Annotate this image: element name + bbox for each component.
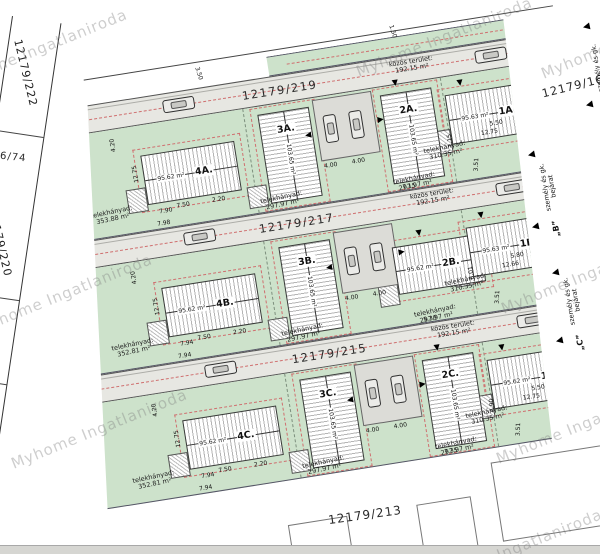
entrance-arrow-down-icon: ▼ xyxy=(477,211,484,220)
entrance-mark: „B” xyxy=(550,220,561,238)
building-label: 1B. xyxy=(518,236,539,250)
dimension: 7.50 xyxy=(176,201,190,210)
building-label: 2C. xyxy=(440,367,461,381)
parcel-label-12179-222: 12179/222 xyxy=(11,38,40,108)
parcel-tick xyxy=(0,293,19,301)
land-share-label: telekhányad:353.88 m² xyxy=(77,202,149,231)
neighbor-building xyxy=(491,444,600,542)
parcel-tick xyxy=(0,377,7,385)
building-label: 4C. xyxy=(236,429,257,443)
building-area: 103.65 m² xyxy=(285,143,297,177)
building-label: 1A. xyxy=(497,104,518,118)
dimension: 3.51 xyxy=(473,158,481,172)
dimension: 7.94 xyxy=(180,339,194,348)
building-label: 3A. xyxy=(275,122,296,136)
building-label: 2A. xyxy=(398,103,419,117)
entrance-arrow-down-icon: ▼ xyxy=(433,343,440,352)
dimension: 7.94 xyxy=(178,351,192,360)
entrance-arrow-down-icon: ▼ xyxy=(391,79,398,88)
dimension: 7.90 xyxy=(159,206,173,215)
building-area: 95.62 m² xyxy=(405,262,435,274)
car-icon xyxy=(516,311,550,329)
dimension: 7.50 xyxy=(197,333,211,342)
building-label: 1C. xyxy=(539,368,560,382)
dimension: 4.00 xyxy=(366,426,380,435)
building-label: 4B. xyxy=(214,296,235,310)
entrance-arrow-down-icon: ▼ xyxy=(498,343,505,352)
dimension: 2.20 xyxy=(233,327,247,336)
entrance-arrow-right-icon: ▶ xyxy=(419,380,426,389)
entrance-arrow-left-icon: ◀ xyxy=(346,395,353,404)
dimension: 4.00 xyxy=(393,421,407,430)
dimension: 4.20 xyxy=(108,138,117,152)
building-label: 3B. xyxy=(296,254,317,268)
entrance-arrow-down-icon: ▼ xyxy=(456,78,463,87)
left-street-strip: 12179/222 12179/220 12179/218 12179/216 xyxy=(0,16,61,554)
dimension: 7.50 xyxy=(218,465,232,474)
parking-area xyxy=(354,356,423,427)
car-icon xyxy=(183,228,217,246)
dimension: 2.20 xyxy=(254,460,268,469)
car-icon xyxy=(322,114,339,144)
building-label: 3C. xyxy=(317,387,338,401)
parking-area xyxy=(312,91,381,162)
car-icon xyxy=(343,246,360,276)
car-icon xyxy=(348,110,365,140)
entrance-mark: „C” xyxy=(574,334,585,352)
scan-edge-bar xyxy=(0,545,600,554)
entrance-arrow-right-icon: ▶ xyxy=(398,248,405,257)
car-icon xyxy=(364,378,381,408)
building-area: 95.63 m² xyxy=(460,111,490,123)
dimension: 3.51 xyxy=(494,290,502,304)
building-area: 95.62 m² xyxy=(156,171,186,183)
dimension: 2.20 xyxy=(212,195,226,204)
dimension: 4.00 xyxy=(324,161,338,170)
land-share-label: telekhányad:352.81 m² xyxy=(119,466,191,495)
dimension: 4.20 xyxy=(129,271,138,285)
building-label: 2B. xyxy=(440,255,461,269)
car-icon xyxy=(474,46,508,64)
parcel-tick xyxy=(0,130,43,138)
building-area: 103.65 m² xyxy=(306,275,318,309)
building-area: 95.62 m² xyxy=(177,304,207,316)
entrance-arrow-down-icon: ▼ xyxy=(415,229,422,238)
dimension: 4.20 xyxy=(150,403,159,417)
entrance-arrow-left-icon: ◀ xyxy=(305,131,312,140)
dimension: 7.94 xyxy=(201,471,215,480)
land-share-label: telekhányad:352.81 m² xyxy=(98,334,170,363)
site-plan: Myhome Ingatlaniroda Myhome Ingatlanirod… xyxy=(0,0,600,554)
dimension: 4.00 xyxy=(351,157,365,166)
car-icon xyxy=(204,360,238,378)
dimension: 7.98 xyxy=(157,219,171,228)
building-area: 103.65 m² xyxy=(327,407,339,441)
building-area: 95.63 m² xyxy=(481,243,511,255)
parcel-label-12179-220: 12179/220 xyxy=(0,208,14,278)
entrance-arrow-right-icon: ▶ xyxy=(377,115,384,124)
parking-area xyxy=(333,223,402,294)
car-icon xyxy=(369,242,386,272)
estate-area: 12179/219 közös terület:192.15 m² xyxy=(39,8,600,515)
dimension: 7.94 xyxy=(199,484,213,493)
building-area: 95.62 m² xyxy=(198,436,228,448)
car-icon xyxy=(495,179,529,197)
car-icon xyxy=(390,374,407,404)
dimension: 3.51 xyxy=(515,423,523,437)
building-label: 4A. xyxy=(193,164,214,178)
entrance-arrow-left-icon: ◀ xyxy=(325,263,332,272)
dimension: 4.00 xyxy=(345,293,359,302)
plan-canvas: 12179/219 közös terület:192.15 m² xyxy=(56,0,600,554)
car-icon xyxy=(162,96,196,114)
building-area: 95.62 m² xyxy=(502,376,532,388)
